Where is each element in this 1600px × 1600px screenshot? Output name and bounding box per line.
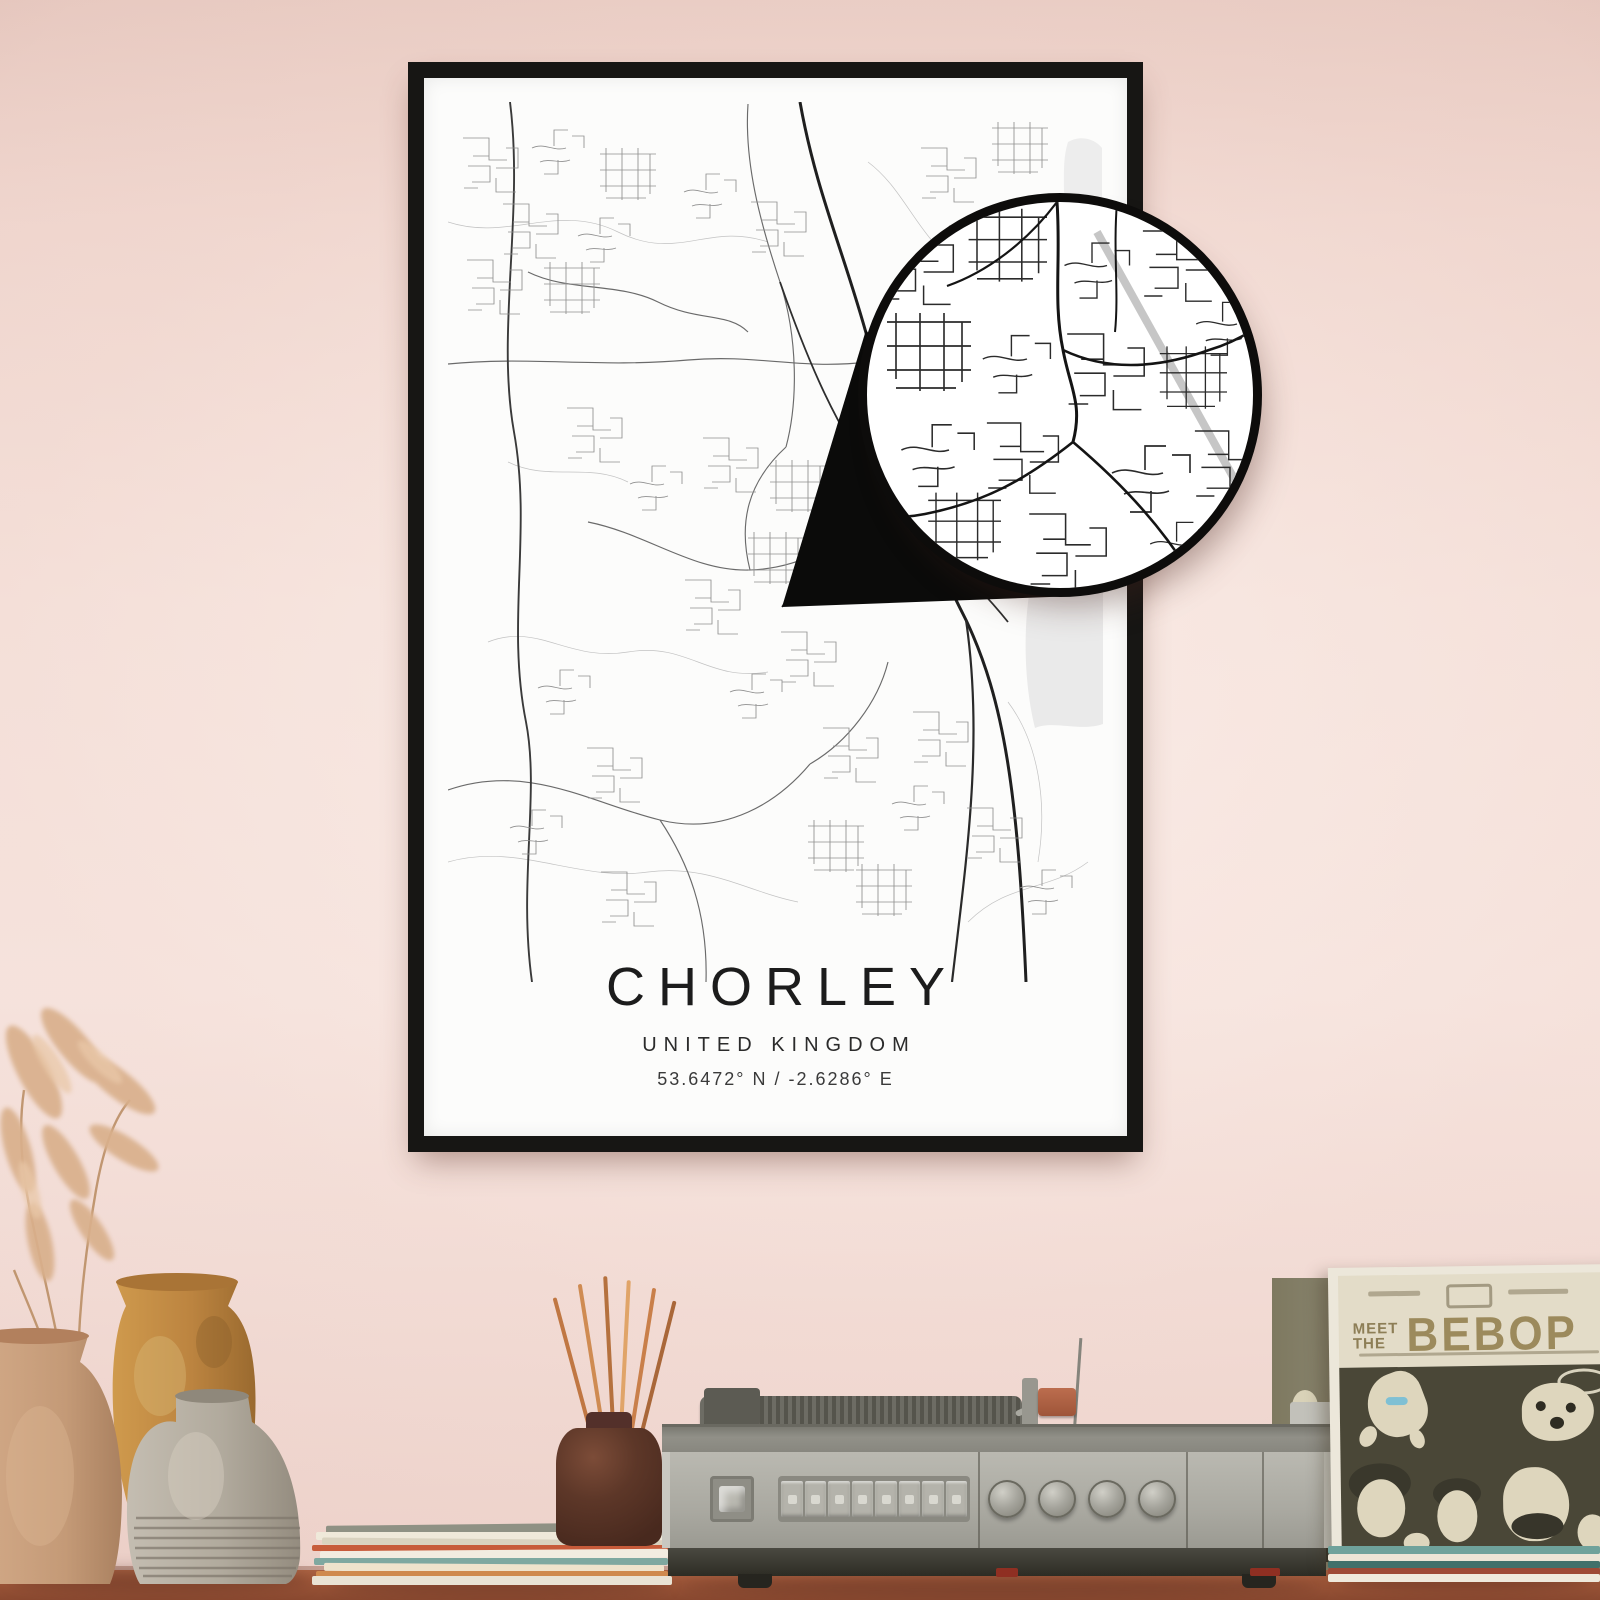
- deck-block: [704, 1388, 760, 1426]
- sleeve-meet: MEET: [1353, 1321, 1399, 1337]
- panel-seam: [978, 1452, 980, 1548]
- preset-button: [946, 1481, 968, 1517]
- character-face-ein: [1521, 1382, 1594, 1441]
- volume-knob: [988, 1480, 1026, 1518]
- record-label-logo: [1446, 1284, 1492, 1309]
- preset-button: [781, 1481, 803, 1517]
- record-edge: [1328, 1554, 1600, 1561]
- sleeve-the: THE: [1353, 1336, 1399, 1352]
- red-detail: [1250, 1568, 1280, 1576]
- antenna: [1073, 1338, 1083, 1434]
- sleeve-title-large: BEBOP: [1406, 1307, 1578, 1363]
- player-front-panel: [662, 1452, 1332, 1548]
- preset-button: [922, 1481, 944, 1517]
- poster-title: CHORLEY: [424, 956, 1127, 1018]
- character-hair-spike: [1407, 1427, 1428, 1451]
- inset-map: [867, 202, 1253, 588]
- preset-button-row: [778, 1476, 970, 1522]
- character-face-faye: [1437, 1490, 1478, 1543]
- power-button: [710, 1476, 754, 1522]
- ein-eye: [1566, 1403, 1576, 1413]
- reed-diffuser: [556, 1412, 666, 1548]
- panel-seam: [1262, 1452, 1264, 1548]
- sleeve-top-band: MEET THE BEBOP: [1338, 1272, 1600, 1368]
- character-face-spike: [1357, 1479, 1406, 1538]
- map-inset-circle: [858, 193, 1262, 597]
- sleeve-fine-print: [1368, 1291, 1420, 1297]
- record-edge: [1328, 1574, 1600, 1582]
- sleeve-artwork: [1339, 1364, 1600, 1556]
- ed-goggles: [1386, 1397, 1408, 1405]
- preset-button: [875, 1481, 897, 1517]
- panel-seam: [1186, 1452, 1188, 1548]
- preset-button: [805, 1481, 827, 1517]
- poster-coordinates: 53.6472° N / -2.6286° E: [424, 1069, 1127, 1090]
- tonearm-cartridge: [1038, 1388, 1076, 1416]
- sleeve-fine-print: [1508, 1289, 1568, 1295]
- record-edge: [1328, 1546, 1600, 1554]
- selector-knob: [1138, 1480, 1176, 1518]
- sleeve-title-row: MEET THE BEBOP: [1352, 1309, 1578, 1362]
- preset-button: [828, 1481, 850, 1517]
- player-foot: [738, 1574, 772, 1588]
- magazine: [312, 1576, 672, 1585]
- records-stack-right: [1328, 1546, 1600, 1582]
- record-sleeve: MEET THE BEBOP: [1328, 1264, 1600, 1566]
- jet-beard: [1511, 1513, 1563, 1540]
- diffuser-bottle: [556, 1428, 662, 1546]
- ein-eye: [1536, 1401, 1546, 1411]
- tone-knob: [1038, 1480, 1076, 1518]
- poster-caption: CHORLEY UNITED KINGDOM 53.6472° N / -2.6…: [424, 956, 1127, 1090]
- preset-button: [899, 1481, 921, 1517]
- preset-button: [852, 1481, 874, 1517]
- sleeve-title-small: MEET THE: [1353, 1321, 1399, 1352]
- vase-group: [0, 1266, 312, 1588]
- record-player: [662, 1338, 1332, 1590]
- player-foot: [1242, 1574, 1276, 1588]
- mockup-photo: CHORLEY UNITED KINGDOM 53.6472° N / -2.6…: [0, 0, 1600, 1600]
- red-switch: [996, 1568, 1018, 1577]
- tonearm-post: [1022, 1378, 1038, 1428]
- poster-subtitle: UNITED KINGDOM: [424, 1034, 1127, 1057]
- tuning-knob: [1088, 1480, 1126, 1518]
- vase-tan: [0, 1328, 122, 1584]
- record-edge: [1328, 1561, 1600, 1568]
